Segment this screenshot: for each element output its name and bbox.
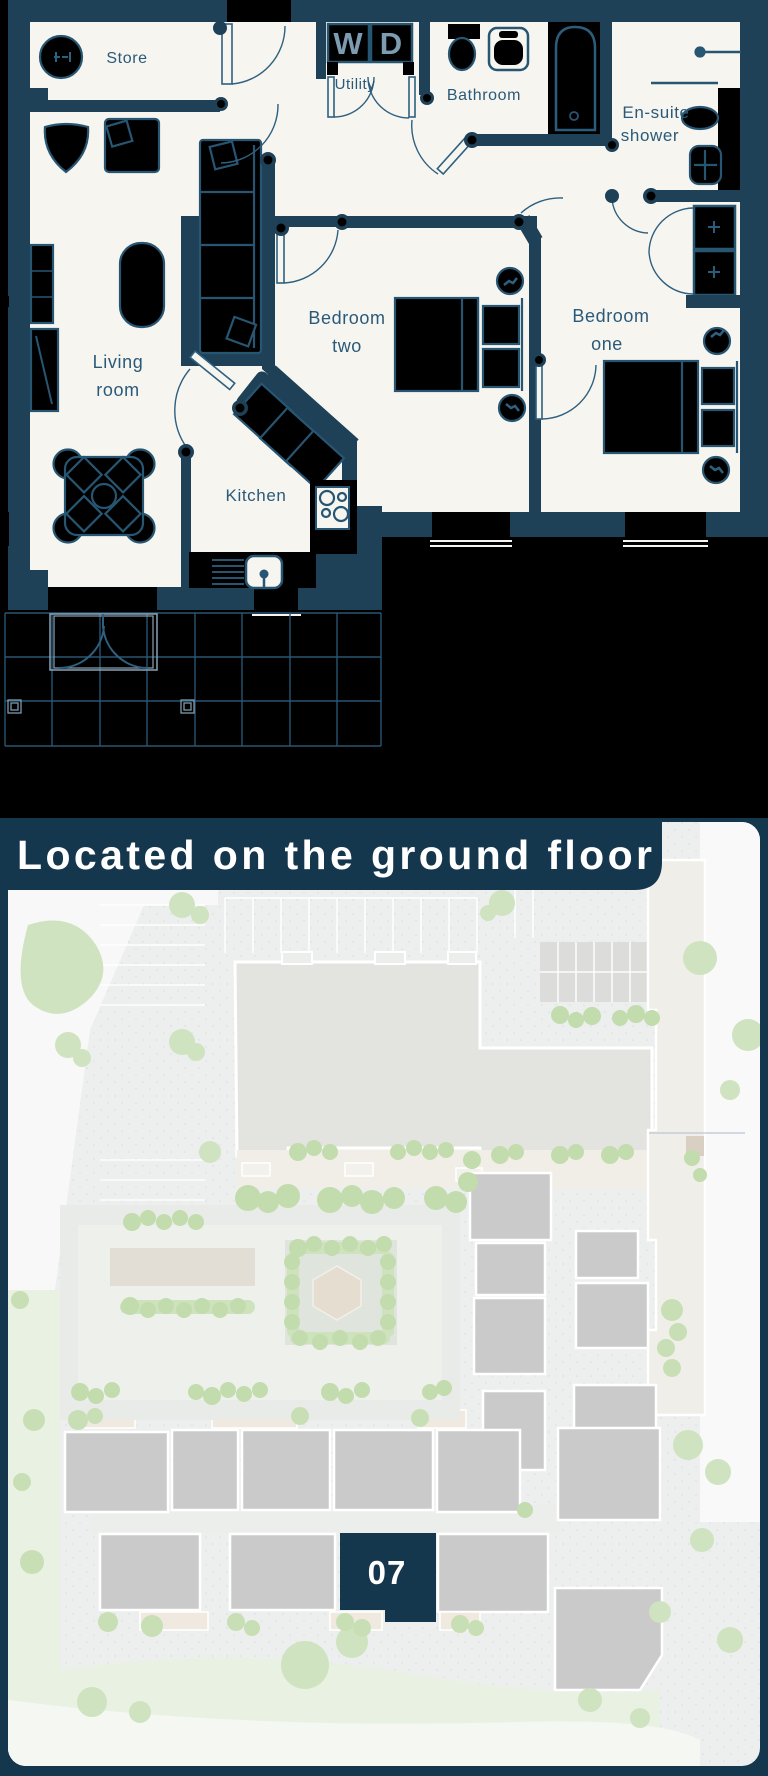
- svg-text:Bathroom: Bathroom: [447, 87, 521, 104]
- svg-text:Located on the ground floor: Located on the ground floor: [17, 832, 655, 878]
- svg-text:Living: Living: [93, 352, 144, 372]
- svg-text:En-suite: En-suite: [622, 103, 689, 122]
- svg-text:Utility: Utility: [335, 76, 376, 93]
- svg-text:07: 07: [368, 1554, 407, 1591]
- svg-text:W: W: [333, 26, 363, 61]
- svg-text:room: room: [96, 380, 139, 400]
- svg-text:Bedroom: Bedroom: [308, 308, 385, 328]
- svg-text:two: two: [332, 336, 362, 356]
- svg-text:shower: shower: [621, 126, 679, 145]
- svg-text:Store: Store: [106, 50, 147, 67]
- svg-text:D: D: [380, 26, 402, 61]
- svg-text:Bedroom: Bedroom: [572, 306, 649, 326]
- svg-text:Kitchen: Kitchen: [226, 486, 287, 505]
- svg-text:one: one: [591, 334, 623, 354]
